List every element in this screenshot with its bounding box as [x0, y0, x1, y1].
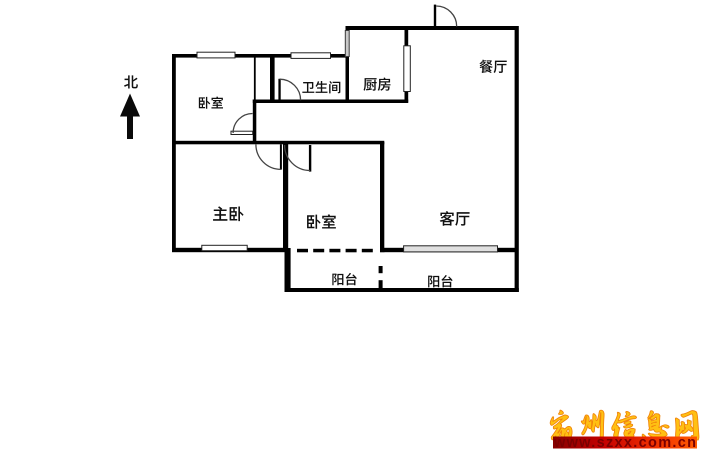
svg-text:www.szxx.com.cn: www.szxx.com.cn	[553, 435, 696, 451]
